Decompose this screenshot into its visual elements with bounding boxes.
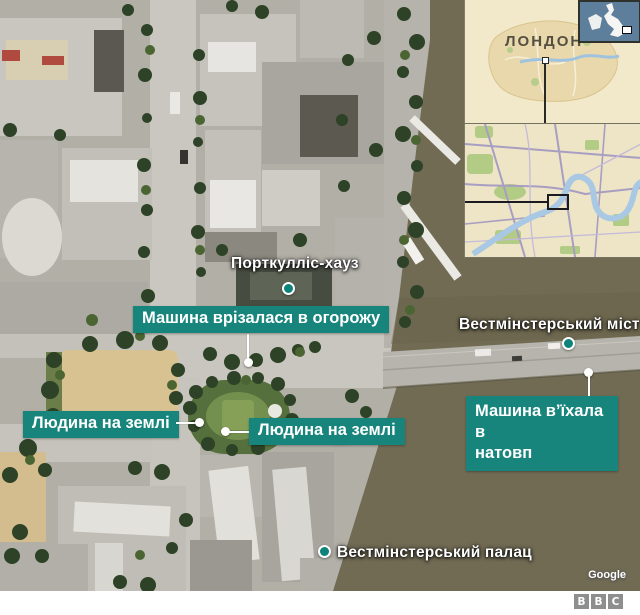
marker-dot-bridge [562, 337, 575, 350]
callout-car-into-crowd: Машина в’їхала в натовп [466, 396, 618, 471]
label-westminster-palace: Вестмінстерський палац [337, 544, 532, 562]
news-map-graphic: Порткулліс-хауз Вестмінстерський міст Ве… [0, 0, 640, 615]
satellite-map: Порткулліс-хауз Вестмінстерський міст Ве… [0, 0, 640, 591]
uk-landmass-graphic [580, 2, 639, 41]
inset-london-map: ЛОНДОН [464, 0, 640, 123]
london-label: ЛОНДОН [505, 33, 583, 50]
callout-car-hit-fence: Машина врізалася в огорожу [133, 306, 389, 333]
marker-dot-portcullis [282, 282, 295, 295]
connector-crowd [588, 376, 590, 398]
london-marker [542, 57, 549, 64]
bbc-logo-block: C [608, 594, 623, 609]
bbc-logo-block: B [591, 594, 606, 609]
bbc-logo: B B C [574, 594, 623, 609]
marker-dot-palace [318, 545, 331, 558]
street-map-marker [547, 194, 569, 210]
connector-person-left [176, 422, 196, 424]
callout-crowd-line1: Машина в’їхала в [475, 401, 609, 443]
incident-dot-crash-fence [244, 358, 253, 367]
street-map-graphic [465, 124, 640, 257]
callout-person-on-ground-left: Людина на землі [23, 411, 179, 438]
uk-mini-map [578, 0, 640, 43]
google-attribution: Google [588, 569, 626, 581]
footer-bar: B B C [0, 591, 640, 615]
callout-crowd-line2: натовп [475, 443, 609, 464]
connector-crash-fence [247, 334, 249, 360]
street-map-marker-line [465, 201, 547, 203]
uk-marker [622, 26, 632, 34]
inset-street-map [464, 123, 640, 258]
label-westminster-bridge: Вестмінстерський міст [459, 316, 640, 334]
bbc-logo-block: B [574, 594, 589, 609]
callout-person-on-ground-right: Людина на землі [249, 418, 405, 445]
london-marker-line [544, 64, 546, 123]
label-portcullis-house: Порткулліс-хауз [231, 255, 359, 273]
connector-person-right [229, 431, 249, 433]
incident-dot-person-left [195, 418, 204, 427]
